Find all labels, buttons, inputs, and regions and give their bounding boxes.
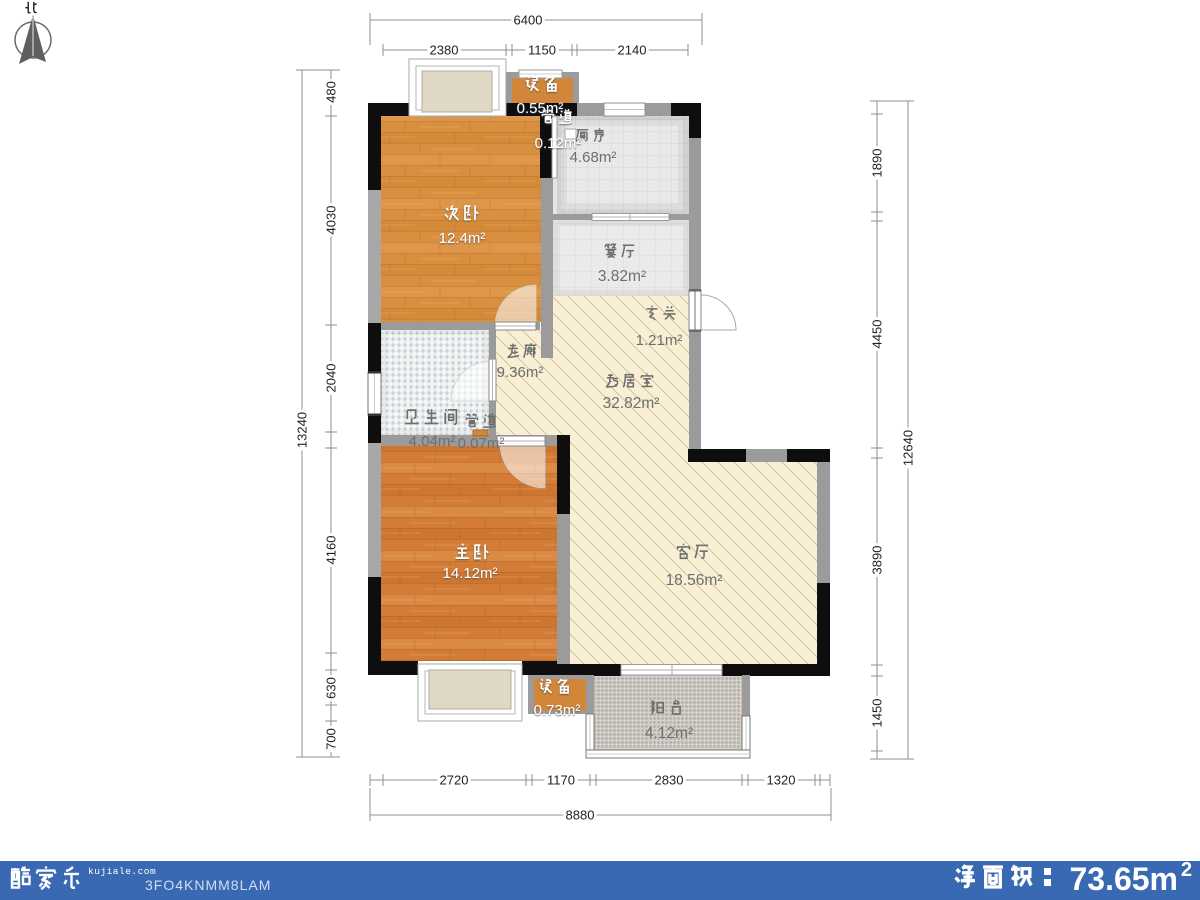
svg-text:3.82m²: 3.82m² — [598, 268, 646, 285]
svg-text:3FO4KNMM8LAM: 3FO4KNMM8LAM — [145, 877, 271, 893]
svg-text:1450: 1450 — [870, 699, 885, 728]
svg-text:73.65m: 73.65m — [1069, 861, 1178, 897]
svg-text:0.12m²: 0.12m² — [535, 135, 582, 152]
svg-text:2380: 2380 — [430, 43, 459, 58]
svg-text:0.55m²: 0.55m² — [517, 100, 564, 117]
svg-text:4.12m²: 4.12m² — [645, 725, 693, 742]
svg-text:630: 630 — [324, 677, 339, 699]
svg-text:2720: 2720 — [440, 773, 469, 788]
svg-text:2: 2 — [1181, 859, 1192, 881]
svg-text:1.21m²: 1.21m² — [636, 332, 683, 349]
svg-text:32.82m²: 32.82m² — [603, 395, 660, 412]
svg-text:1170: 1170 — [547, 773, 575, 788]
svg-text:12.4m²: 12.4m² — [439, 230, 486, 247]
svg-text:0.73m²: 0.73m² — [534, 702, 581, 719]
svg-text:4.04m²: 4.04m² — [409, 433, 456, 450]
svg-text:4030: 4030 — [324, 206, 339, 235]
svg-text:2040: 2040 — [324, 364, 339, 393]
svg-text:kujiale.com: kujiale.com — [88, 866, 156, 877]
svg-text:2830: 2830 — [655, 773, 684, 788]
svg-text:1320: 1320 — [767, 773, 796, 788]
svg-text:8880: 8880 — [566, 808, 595, 823]
svg-text:4160: 4160 — [324, 536, 339, 565]
svg-text:0.07m²: 0.07m² — [458, 435, 505, 452]
svg-text:12640: 12640 — [901, 430, 916, 466]
svg-text:14.12m²: 14.12m² — [442, 565, 497, 582]
svg-text:9.36m²: 9.36m² — [497, 364, 544, 381]
svg-text:2140: 2140 — [618, 43, 647, 58]
svg-text:6400: 6400 — [514, 13, 543, 28]
svg-text:1150: 1150 — [528, 43, 556, 58]
svg-text:480: 480 — [324, 81, 339, 103]
svg-text:3890: 3890 — [870, 546, 885, 575]
svg-text:700: 700 — [324, 728, 339, 750]
svg-text:18.56m²: 18.56m² — [666, 572, 723, 589]
svg-text:4450: 4450 — [870, 320, 885, 349]
svg-text:13240: 13240 — [295, 412, 310, 448]
svg-text:1890: 1890 — [870, 149, 885, 178]
